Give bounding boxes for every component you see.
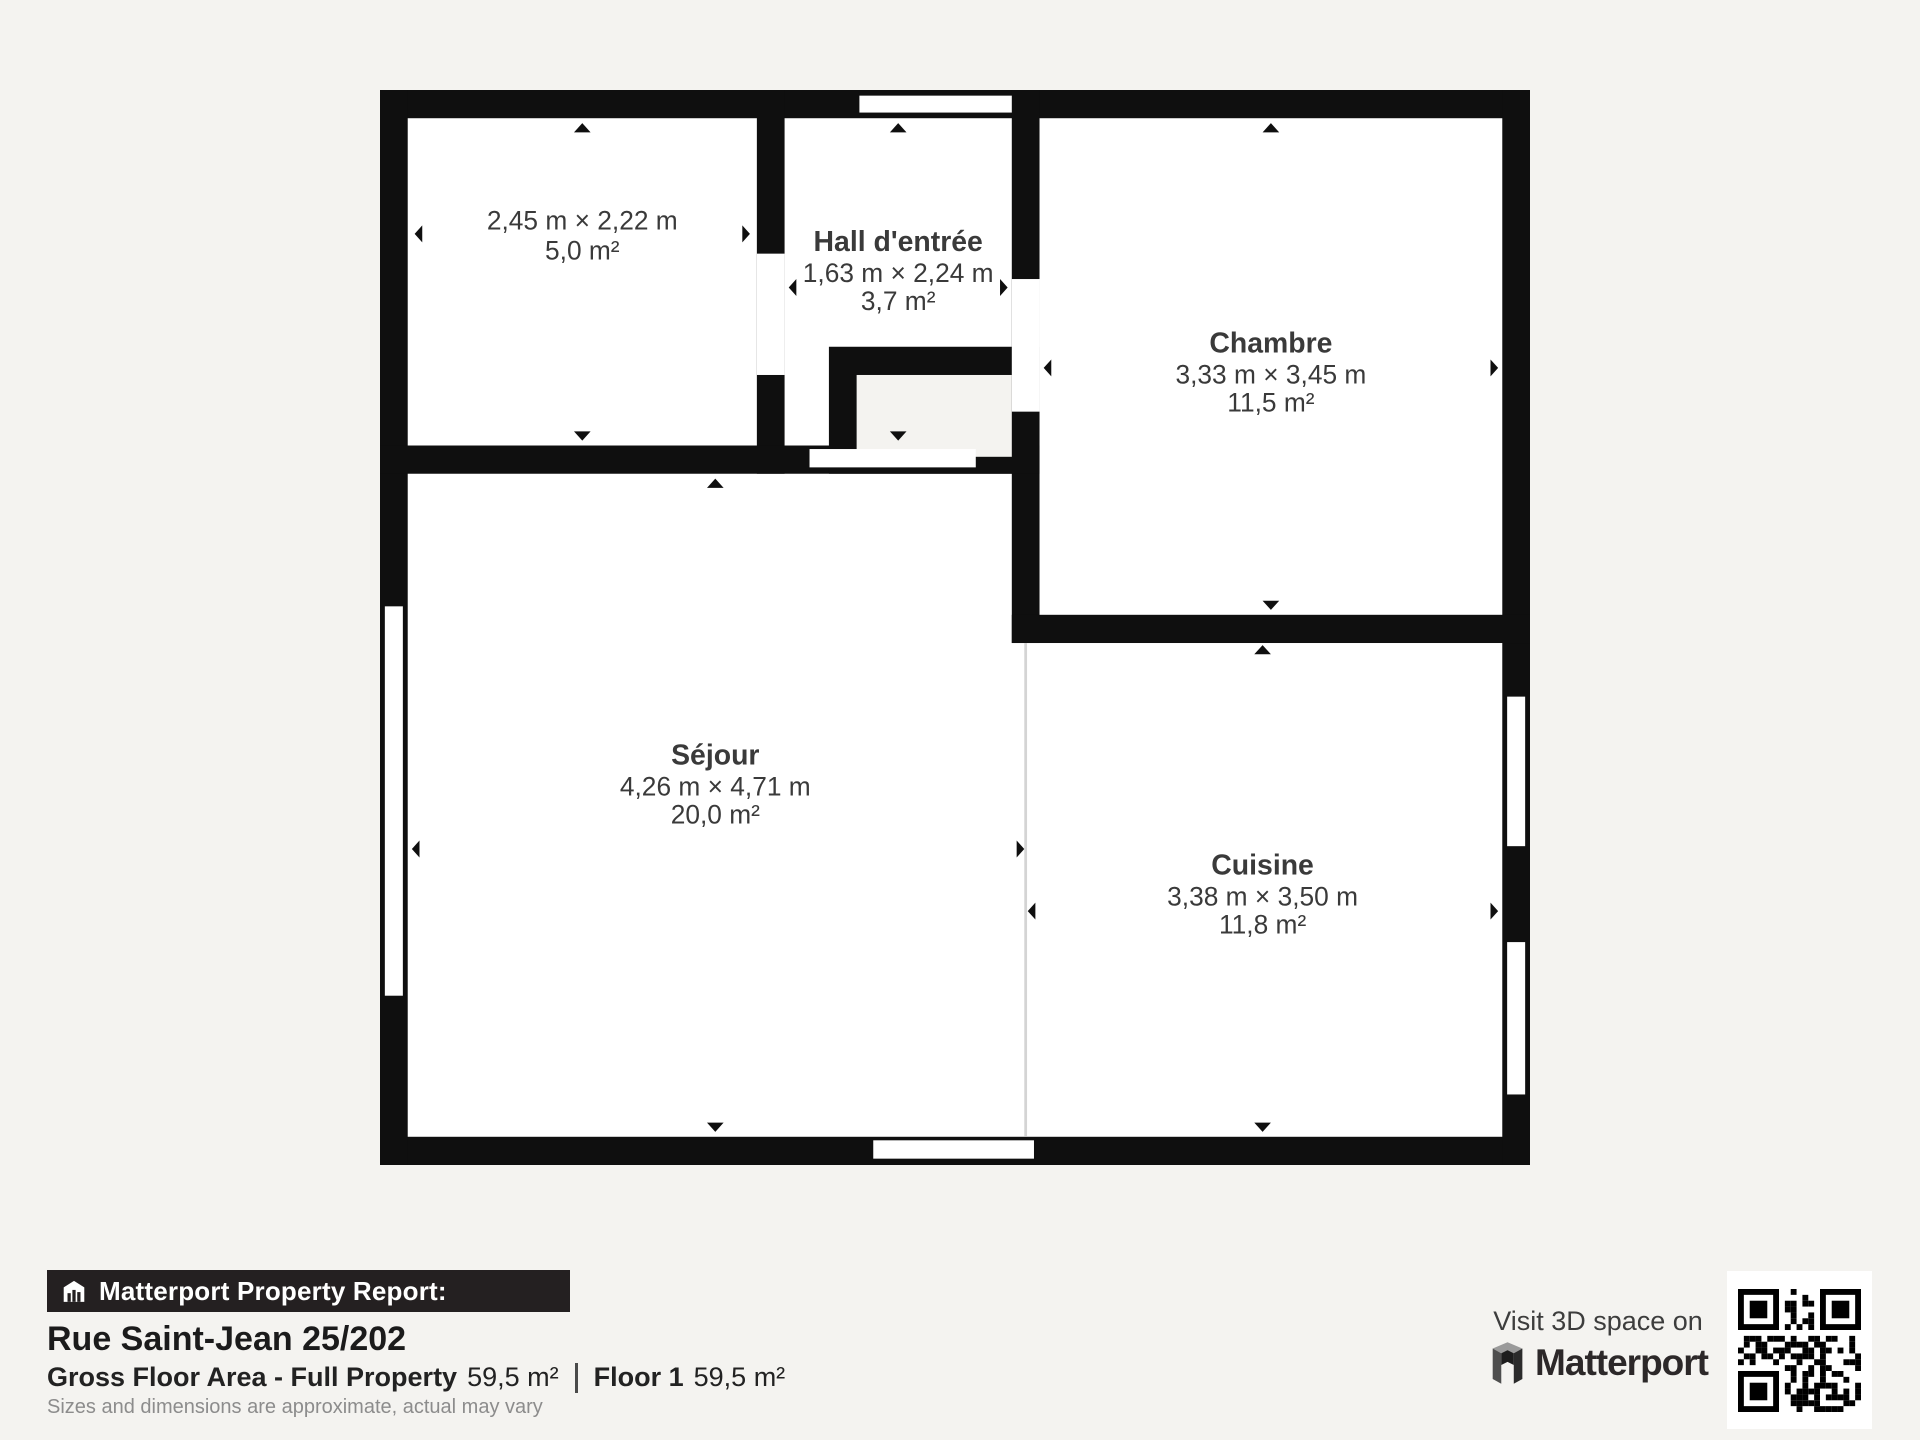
page: { "plan": { "wall_color": "#0f0f0f", "fl… [0,0,1920,1440]
window-cuisine-1 [1507,697,1525,847]
banner-title: Matterport Property Report: [99,1276,447,1307]
window-sejour [385,606,403,995]
floor-area-summary: Gross Floor Area - Full Property 59,5 m²… [47,1362,785,1393]
svg-text:20,0 m²: 20,0 m² [671,799,760,829]
door-sejour-bottom [873,1140,1034,1158]
matterport-logo-icon [1488,1341,1527,1385]
door-storage-hall [757,254,785,375]
floor-value: 59,5 m² [694,1362,786,1393]
report-banner: Matterport Property Report: [47,1270,570,1312]
svg-text:2,45 m × 2,22 m: 2,45 m × 2,22 m [487,205,678,235]
gfa-label: Gross Floor Area - Full Property [47,1362,457,1393]
floor-plan: 2,45 m × 2,22 m 5,0 m² Hall d'entrée 1,6… [380,90,1530,1165]
qr-code [1727,1271,1872,1429]
matterport-wordmark: Matterport [1535,1342,1708,1384]
cta-text: Visit 3D space on [1488,1306,1708,1337]
svg-text:Cuisine: Cuisine [1211,849,1314,881]
summary-divider [575,1363,578,1393]
gfa-value: 59,5 m² [467,1362,559,1393]
visit-3d-cta: Visit 3D space on Matterport [1488,1306,1708,1385]
window-cuisine-2 [1507,942,1525,1094]
door-hall-chambre [1012,279,1040,412]
room-storage-floor [408,118,757,445]
property-icon [61,1278,87,1304]
svg-text:11,5 m²: 11,5 m² [1227,387,1314,417]
svg-text:5,0 m²: 5,0 m² [545,235,620,265]
disclaimer-text: Sizes and dimensions are approximate, ac… [47,1396,543,1419]
svg-text:Hall d'entrée: Hall d'entrée [814,226,983,258]
svg-text:Séjour: Séjour [671,739,759,771]
svg-text:3,7 m²: 3,7 m² [861,286,936,316]
niche-cavity [857,375,1012,457]
room-sejour-cuisine-floor [408,474,1503,1137]
entry-door [859,96,1011,113]
svg-text:Chambre: Chambre [1209,327,1332,359]
door-hall-sejour [810,449,976,467]
floor-label: Floor 1 [594,1362,684,1393]
property-address: Rue Saint-Jean 25/202 [47,1320,406,1359]
svg-text:11,8 m²: 11,8 m² [1219,909,1306,939]
